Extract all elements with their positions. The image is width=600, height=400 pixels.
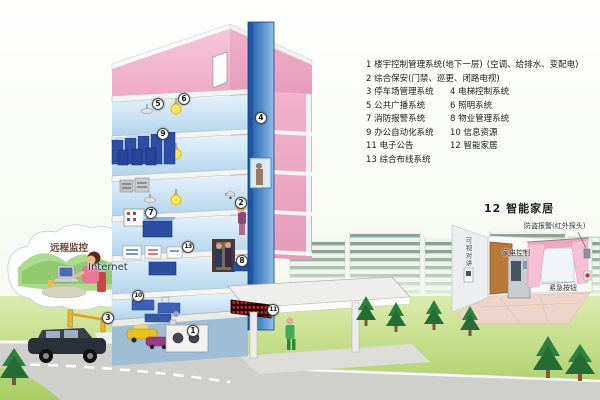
smart-home-room [452,225,592,324]
marker-2: 2 [235,197,247,209]
marker-10: 10 [132,290,144,302]
intercom-label: 可视对讲 [463,237,473,267]
legend-row: 5 公共广播系统6 照明系统 [366,100,598,114]
curtains [527,238,589,288]
marker-11: 11 [267,304,279,316]
alarm-label: 防盗报警(红外探头) [524,221,585,231]
legend-row: 13 综合布线系统 [366,154,598,168]
legend: 1 楼宇控制管理系统(地下一层)(空调、给排水、变配电)2 综合保安(门禁、巡更… [366,59,598,167]
building-interior [112,89,248,366]
remote-monitoring-label: 远程监控 [50,240,88,254]
smart-home-title: 12 智能家居 [484,200,554,216]
intercom-device [464,268,473,282]
marker-6: 6 [178,93,190,105]
drink [48,280,53,287]
marker-7: 7 [145,207,157,219]
legend-row: 11 电子公告12 智能家居 [366,140,598,154]
table [42,286,86,298]
roof-door [213,52,227,88]
smart-building-diagram: 1 楼宇控制管理系统(地下一层)(空调、给排水、变配电)2 综合保安(门禁、巡更… [0,0,600,400]
legend-row: 3 停车场管理系统4 电梯控制系统 [366,86,598,100]
emergency-button [584,271,591,280]
internet-label: Internet [88,262,128,273]
marker-3: 3 [102,312,114,324]
legend-row: 7 消防报警系统8 物业管理系统 [366,113,598,127]
legend-row: 1 楼宇控制管理系统(地下一层)(空调、给排水、变配电) [366,59,598,73]
marker-5: 5 [152,98,164,110]
marker-9: 9 [157,128,169,140]
building-control-plant [166,320,208,352]
marker-4: 4 [255,112,267,124]
appliance-cabinet [508,256,530,298]
appliance-label: 家电控制 [502,248,530,258]
elevator-icon [250,158,271,188]
legend-row: 2 综合保安(门禁、巡更、闭路电视) [366,73,598,87]
marker-1: 1 [187,325,199,337]
marker-13: 13 [182,241,194,253]
marker-8: 8 [236,255,248,267]
legend-row: 9 办公自动化系统10 信息资源 [366,127,598,141]
emergency-label: 紧急按钮 [549,283,577,293]
